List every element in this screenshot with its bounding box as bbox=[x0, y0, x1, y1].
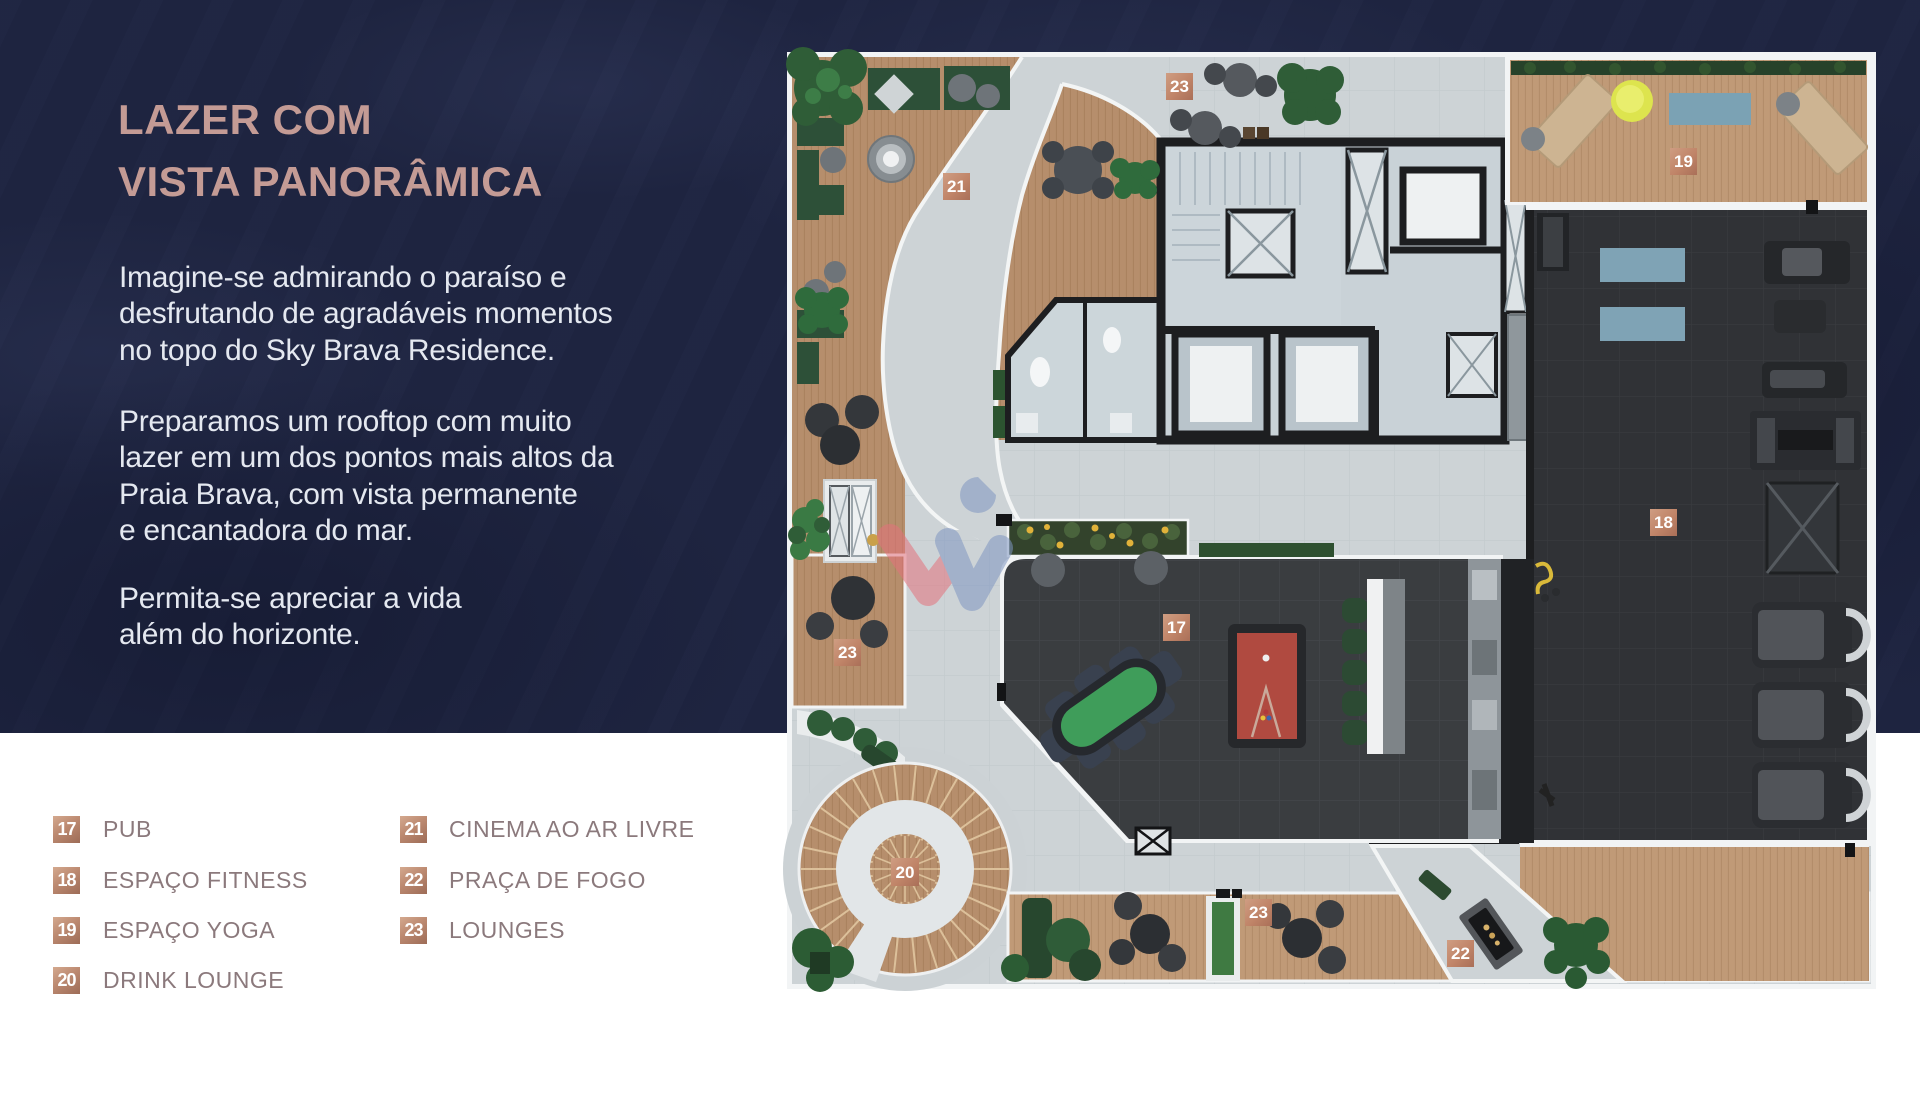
svg-text:17: 17 bbox=[1167, 618, 1186, 637]
svg-text:23: 23 bbox=[838, 643, 857, 662]
svg-text:22: 22 bbox=[1451, 944, 1470, 963]
svg-text:18: 18 bbox=[1654, 513, 1673, 532]
svg-text:20: 20 bbox=[896, 863, 915, 882]
svg-text:21: 21 bbox=[947, 177, 966, 196]
svg-text:19: 19 bbox=[1674, 152, 1693, 171]
svg-text:23: 23 bbox=[1170, 77, 1189, 96]
svg-text:23: 23 bbox=[1249, 903, 1268, 922]
